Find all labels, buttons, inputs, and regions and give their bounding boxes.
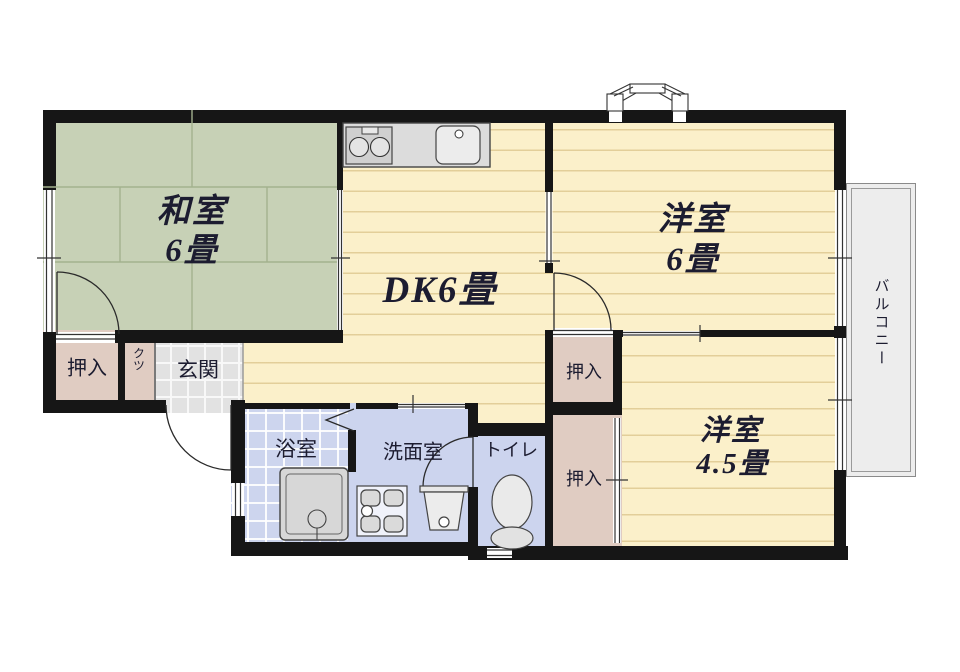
label-washitsu-size: 6畳	[165, 223, 219, 271]
stove-icon	[346, 127, 392, 164]
washbasin-icon	[420, 486, 468, 530]
label-bathroom: 浴室	[275, 433, 317, 463]
bay-window	[607, 84, 688, 122]
label-genkan: 玄関	[177, 354, 219, 384]
label-yoshitsu6-size: 6畳	[666, 232, 720, 280]
floor-plan: 和室 6畳 DK6畳 洋室 6畳 洋室 4.5畳 押入 クツ 玄関 浴室 洗面室…	[0, 0, 960, 672]
washer-pan-icon	[357, 486, 407, 536]
bathtub-icon	[280, 468, 348, 540]
plan-symbols	[0, 0, 960, 672]
label-toilet: トイレ	[484, 436, 538, 462]
sink-icon	[436, 126, 480, 164]
label-balcony: バルコニー	[871, 278, 892, 368]
kitchen-counter	[343, 123, 490, 167]
label-closet-mid-bottom: 押入	[566, 465, 602, 491]
label-shoe-box: クツ	[131, 347, 148, 371]
label-yoshitsu45-size: 4.5畳	[696, 440, 769, 482]
label-dk: DK6畳	[383, 259, 498, 313]
label-washroom: 洗面室	[383, 436, 443, 465]
toilet-icon	[491, 475, 533, 549]
label-closet-mid-top: 押入	[566, 358, 602, 384]
label-closet-left: 押入	[67, 352, 107, 381]
